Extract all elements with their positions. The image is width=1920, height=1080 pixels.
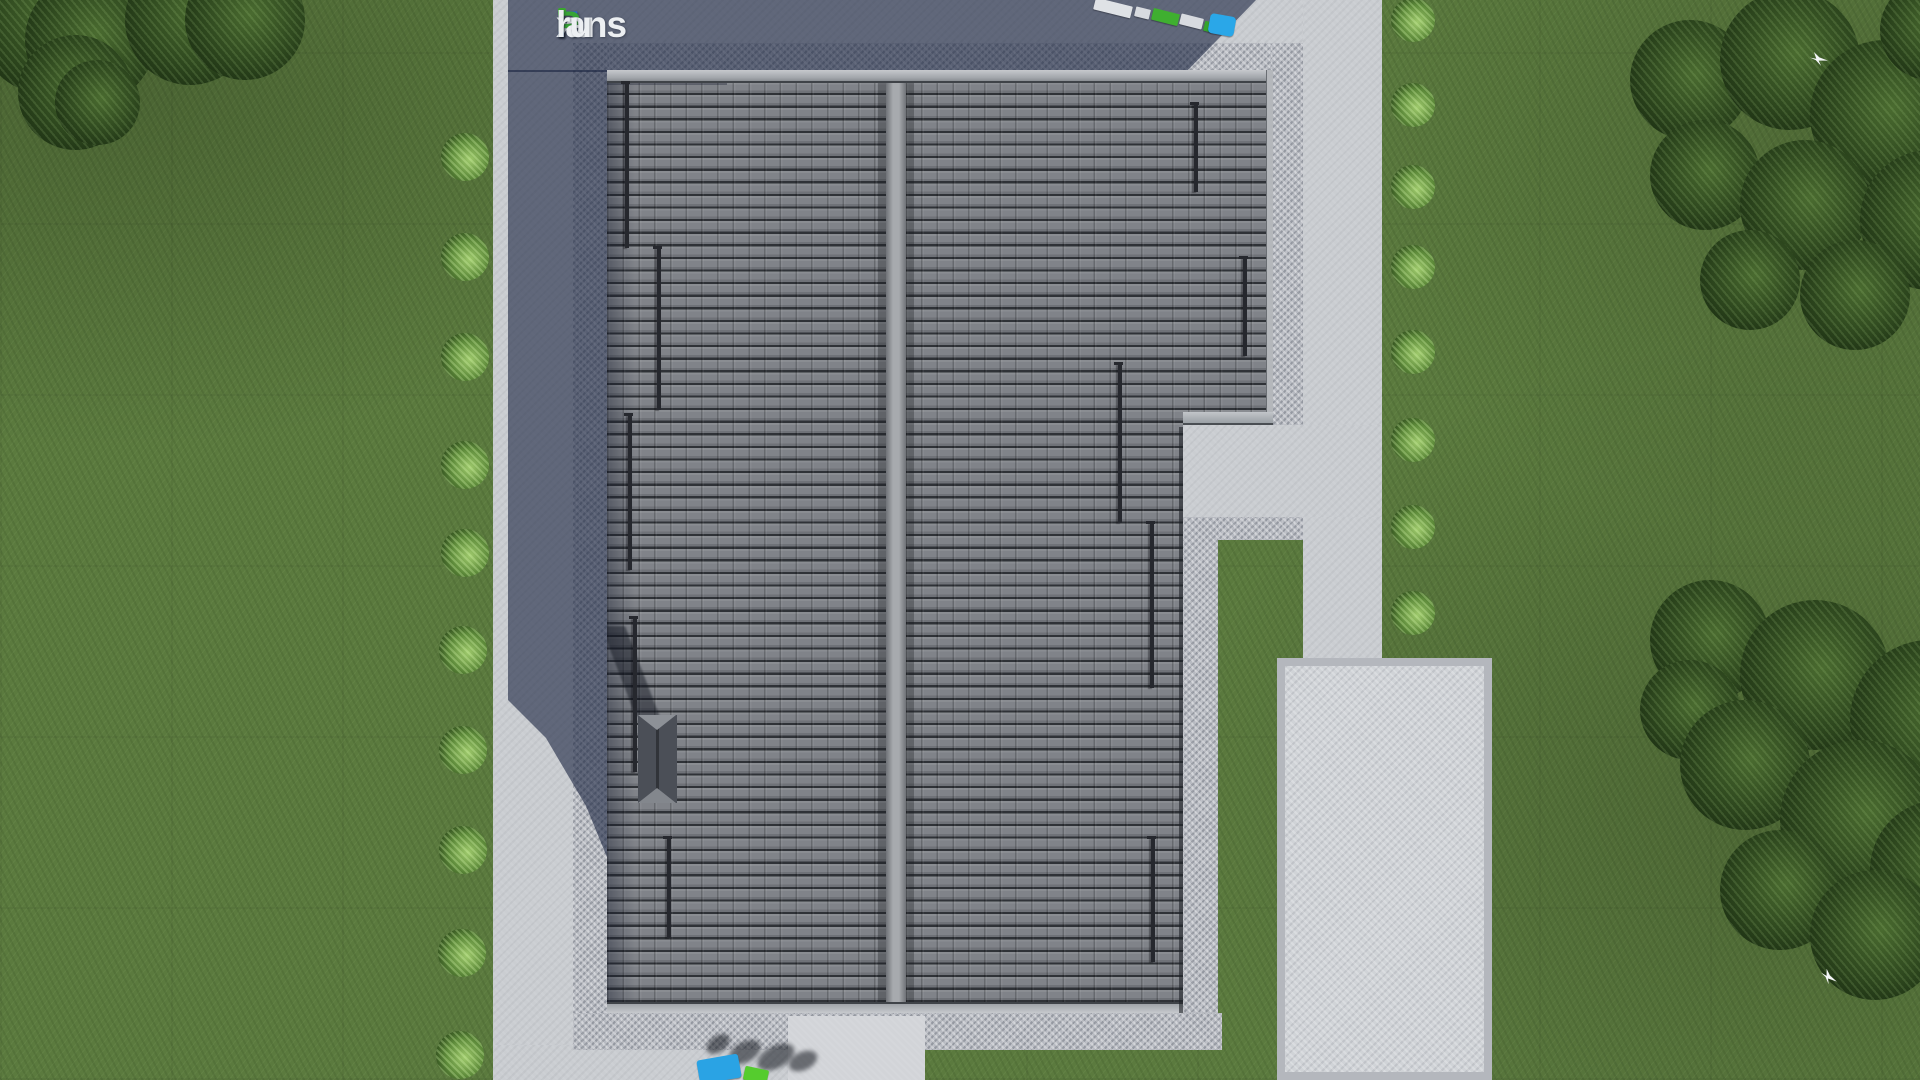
yard-object	[1207, 13, 1236, 37]
snow-guard-rail	[657, 248, 661, 410]
path-right	[1303, 0, 1382, 660]
tree	[1800, 240, 1910, 350]
hedge-bush	[1391, 505, 1435, 549]
snow-guard-rail	[1151, 838, 1155, 962]
hedge-bush	[441, 233, 489, 281]
hedge-bush	[438, 929, 486, 977]
hedge-bush	[1391, 245, 1435, 289]
logo-segment: ru	[556, 5, 591, 45]
roof-fascia-top	[607, 70, 1273, 83]
snow-guard-rail	[625, 83, 629, 248]
roof-fascia-bottom	[607, 1002, 1273, 1013]
tree	[1700, 230, 1800, 330]
snow-guard-rail	[633, 618, 637, 772]
hedge-bush	[441, 333, 489, 381]
hedge-bush	[441, 133, 489, 181]
roof-fascia-right	[1266, 70, 1273, 425]
hedge-bush	[439, 626, 487, 674]
hedge-bush	[436, 1031, 484, 1079]
hedge-bush	[1391, 591, 1435, 635]
snow-guard-rail	[1243, 258, 1247, 356]
parking-pad	[1277, 658, 1492, 1080]
snow-guard-rail	[667, 838, 671, 938]
hedge-bush	[1391, 0, 1435, 42]
hedge-bush	[1391, 83, 1435, 127]
roof-edge-right-lower	[1179, 427, 1183, 1013]
roof-fascia-notch	[1183, 412, 1273, 425]
aerial-house-render: FixPlans.ru	[0, 0, 1920, 1080]
tree	[55, 60, 140, 145]
hedge-bush	[439, 826, 487, 874]
chimney	[638, 715, 677, 803]
gravel-apron-right	[1271, 43, 1303, 425]
entrance-walkway	[788, 1016, 925, 1080]
terrace-walkway	[1183, 425, 1382, 517]
hedge-bush	[441, 441, 489, 489]
hedge-bush	[1391, 165, 1435, 209]
snow-guard-rail	[1194, 104, 1198, 192]
hedge-bush	[441, 529, 489, 577]
snow-guard-rail	[628, 415, 632, 570]
hedge-bush	[1391, 330, 1435, 374]
hedge-bush	[439, 726, 487, 774]
hedge-bush	[1391, 418, 1435, 462]
snow-guard-rail	[1150, 523, 1154, 688]
house-roof	[607, 70, 1273, 1013]
snow-guard-rail	[1118, 364, 1122, 523]
gravel-apron-right-lower	[1183, 517, 1218, 1013]
roof-ridge	[886, 81, 906, 1004]
